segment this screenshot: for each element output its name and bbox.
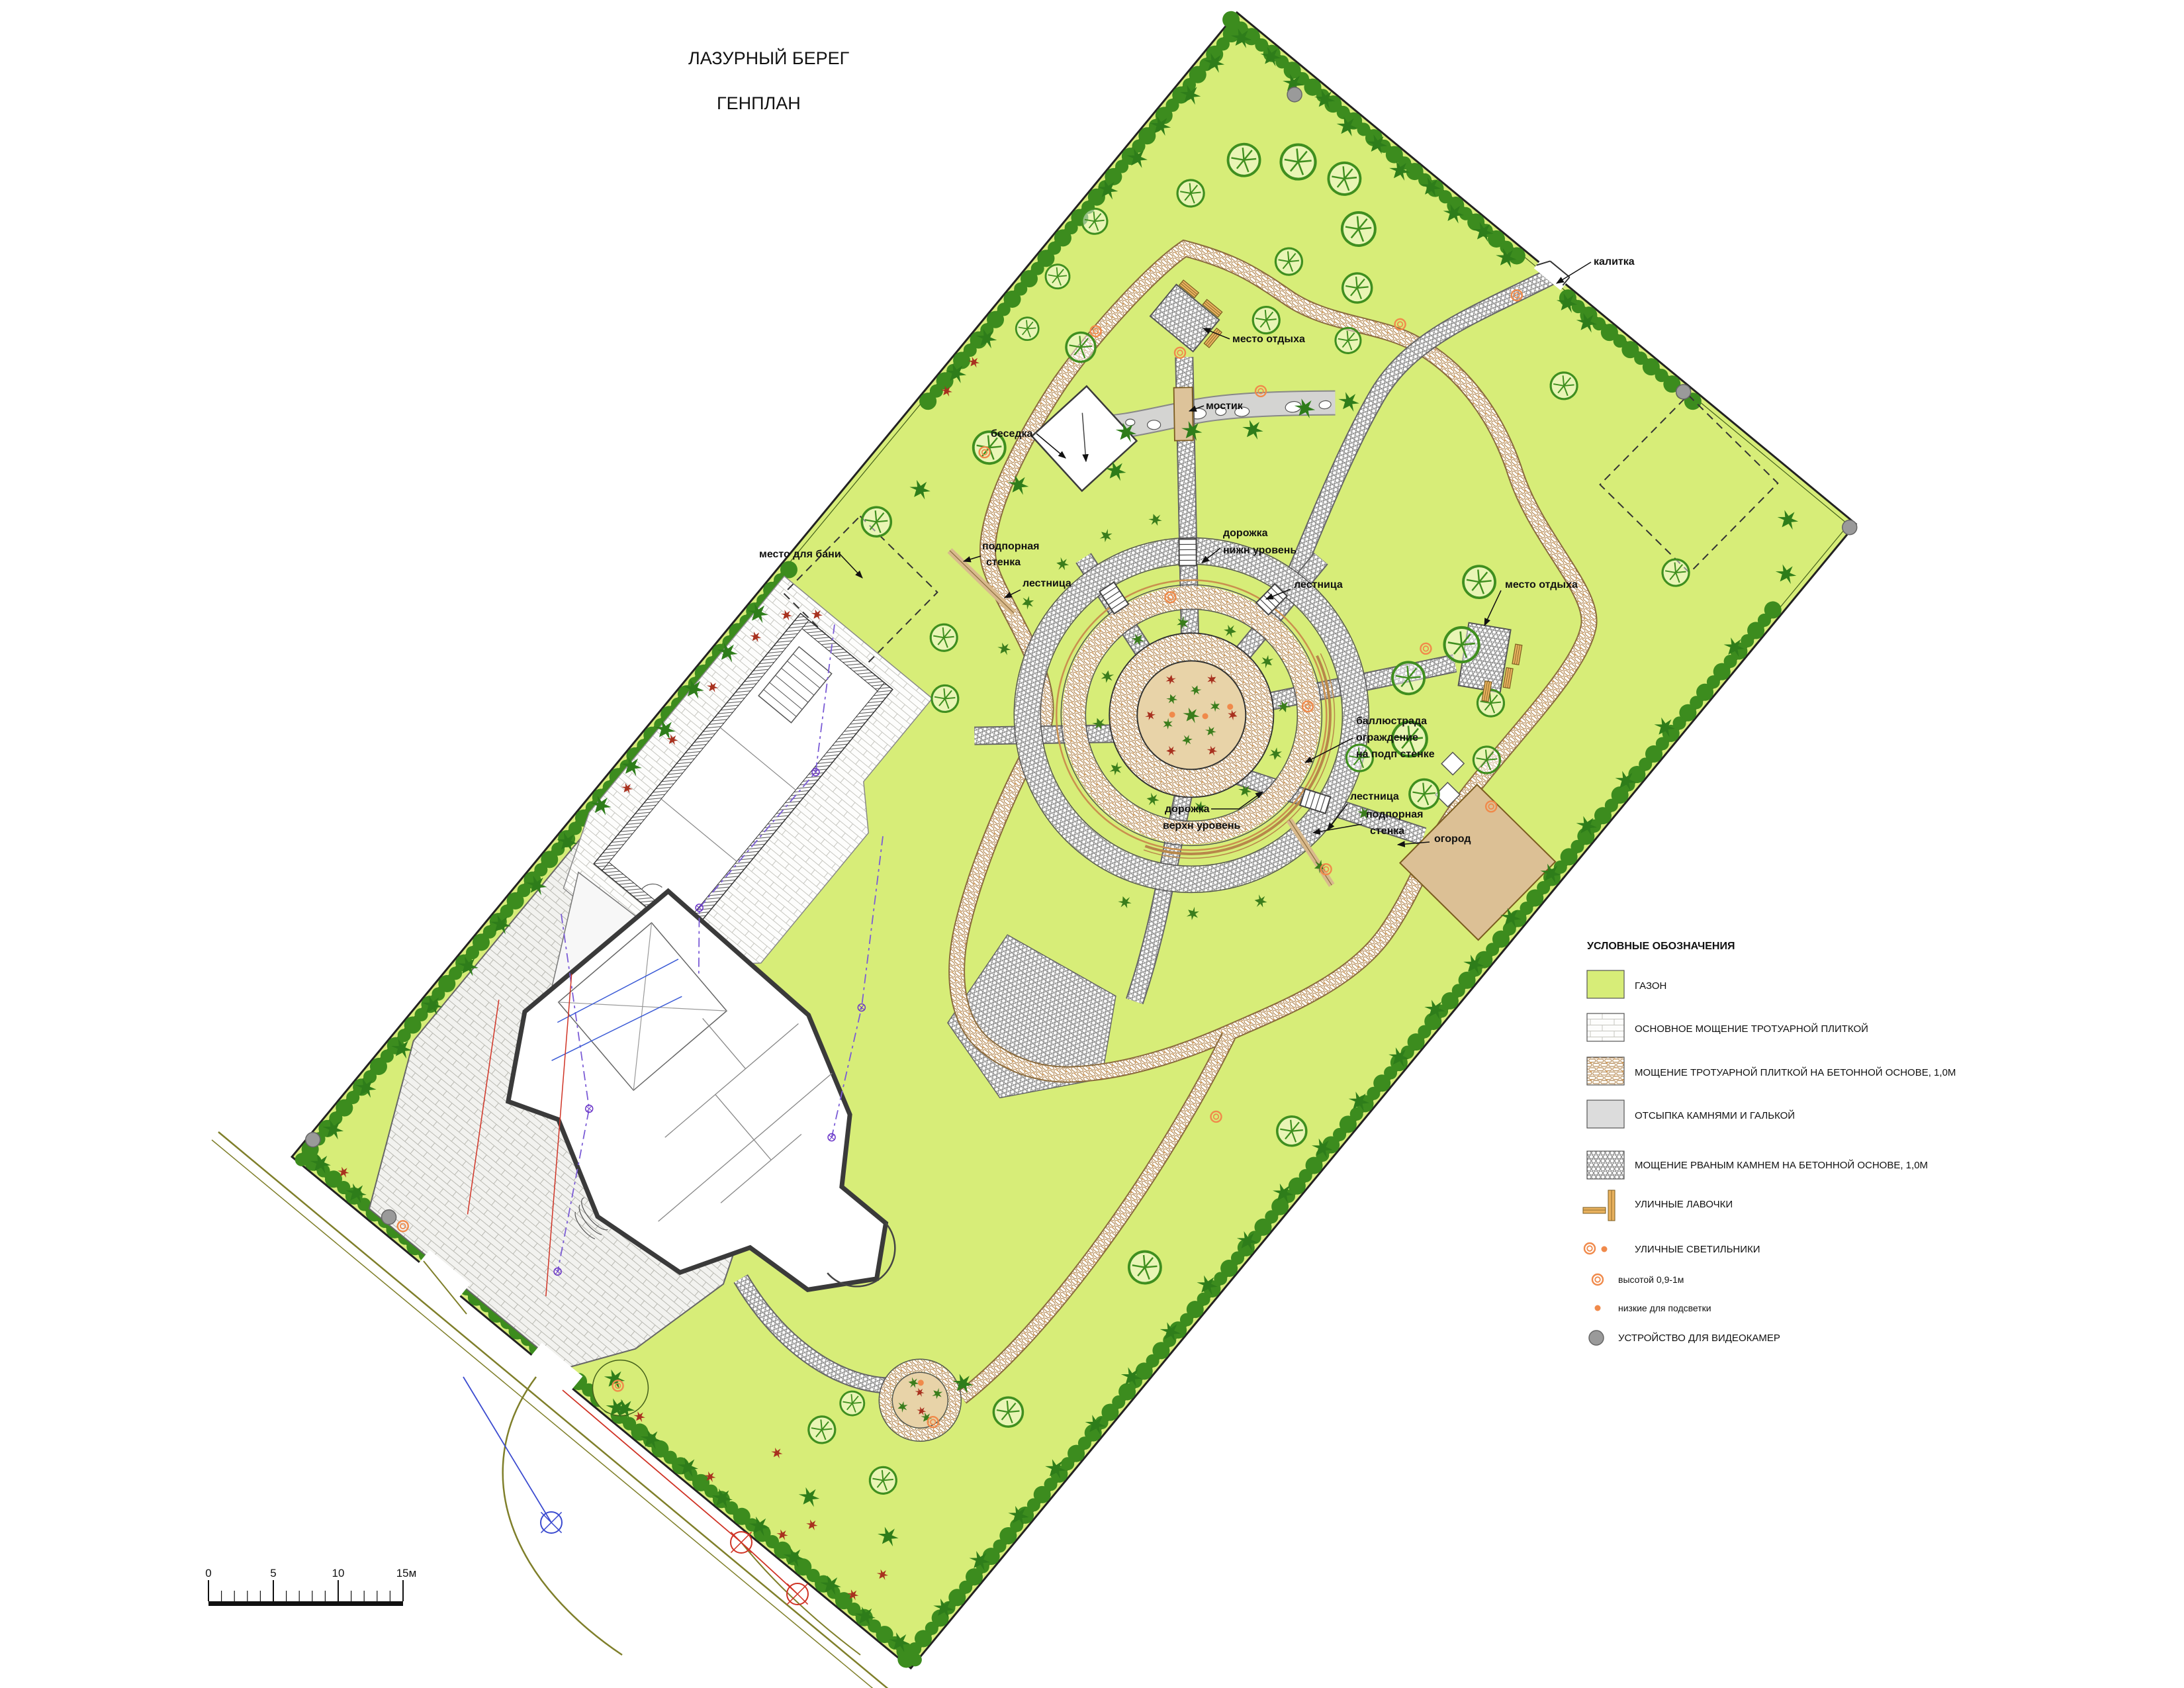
creek-stone: [1148, 420, 1161, 430]
camera-icon: [1589, 1331, 1604, 1345]
legend-swatch-main-paving: [1587, 1013, 1624, 1041]
label-balustrade-line3: на подп стенке: [1356, 749, 1435, 760]
label-path-low-line2: нижн уровень: [1223, 545, 1297, 556]
legend-subitem: низкие для подсветки: [1618, 1303, 1711, 1313]
legend-swatch-lawn: [1587, 970, 1624, 998]
label-bath: место для бани: [759, 549, 841, 560]
scale-tick-label: 5: [270, 1567, 276, 1579]
plan-subtitle: ГЕНПЛАН: [717, 93, 801, 113]
label-stairs3: лестница: [1350, 791, 1399, 802]
label-garden: огород: [1434, 833, 1471, 845]
plan-title: ЛАЗУРНЫЙ БЕРЕГ: [688, 48, 850, 68]
label-gazebo: беседка: [991, 428, 1033, 440]
scale-tick-label: 10: [332, 1567, 345, 1579]
legend-swatch-gravel: [1587, 1100, 1624, 1128]
creek-stone: [1126, 419, 1135, 426]
label-balustrade-line1: баллюстрада: [1356, 716, 1427, 727]
legend-heading: УСЛОВНЫЕ ОБОЗНАЧЕНИЯ: [1587, 941, 1735, 952]
legend-item: МОЩЕНИЕ РВАНЫМ КАМНЕМ НА БЕТОННОЙ ОСНОВЕ…: [1635, 1159, 1928, 1171]
label-gate: калитка: [1594, 256, 1635, 267]
legend-item: ГАЗОН: [1635, 980, 1666, 992]
label-rest-top: место отдыха: [1232, 334, 1305, 345]
low-lamp-icon: [1595, 1305, 1601, 1311]
legend-swatch-tile-concrete: [1587, 1057, 1624, 1085]
label-wall1-line1: подпорная: [982, 541, 1040, 552]
label-stairs2: лестница: [1294, 579, 1343, 590]
legend-item: ОТСЫПКА КАМНЯМИ И ГАЛЬКОЙ: [1635, 1109, 1795, 1121]
site-plan: ЛАЗУРНЫЙ БЕРЕГ ГЕНПЛАН калитка место отд…: [0, 0, 2184, 1688]
label-wall2-line1: подпорная: [1366, 809, 1424, 820]
stairs-icon: [1179, 539, 1196, 565]
legend-subitem: высотой 0,9-1м: [1618, 1274, 1684, 1285]
scale-tick-label: 0: [205, 1567, 211, 1579]
label-bridge: мостик: [1206, 400, 1244, 412]
legend-item: УЛИЧНЫЕ СВЕТИЛЬНИКИ: [1635, 1244, 1760, 1255]
scale-tick-label: 15м: [396, 1567, 417, 1579]
label-wall1-line2: стенка: [986, 557, 1021, 568]
label-rest-right: место отдыха: [1505, 579, 1578, 590]
genplan-page: ЛАЗУРНЫЙ БЕРЕГ ГЕНПЛАН калитка место отд…: [0, 0, 2184, 1688]
label-stairs1: лестница: [1023, 578, 1071, 589]
label-path-low-line1: дорожка: [1223, 528, 1268, 539]
label-path-up-line1: дорожка: [1165, 804, 1210, 815]
legend-item: ОСНОВНОЕ МОЩЕНИЕ ТРОТУАРНОЙ ПЛИТКОЙ: [1635, 1023, 1868, 1035]
legend-item: УЛИЧНЫЕ ЛАВОЧКИ: [1635, 1199, 1733, 1210]
label-wall2-line2: стенка: [1370, 825, 1404, 837]
label-path-up-line2: верхн уровень: [1163, 820, 1241, 831]
legend-swatch-rough-stone: [1587, 1151, 1624, 1179]
legend-item: УСТРОЙСТВО ДЛЯ ВИДЕОКАМЕР: [1618, 1332, 1780, 1344]
legend-item: МОЩЕНИЕ ТРОТУАРНОЙ ПЛИТКОЙ НА БЕТОННОЙ О…: [1635, 1066, 1956, 1078]
label-balustrade-line2: ограждение: [1356, 732, 1418, 743]
